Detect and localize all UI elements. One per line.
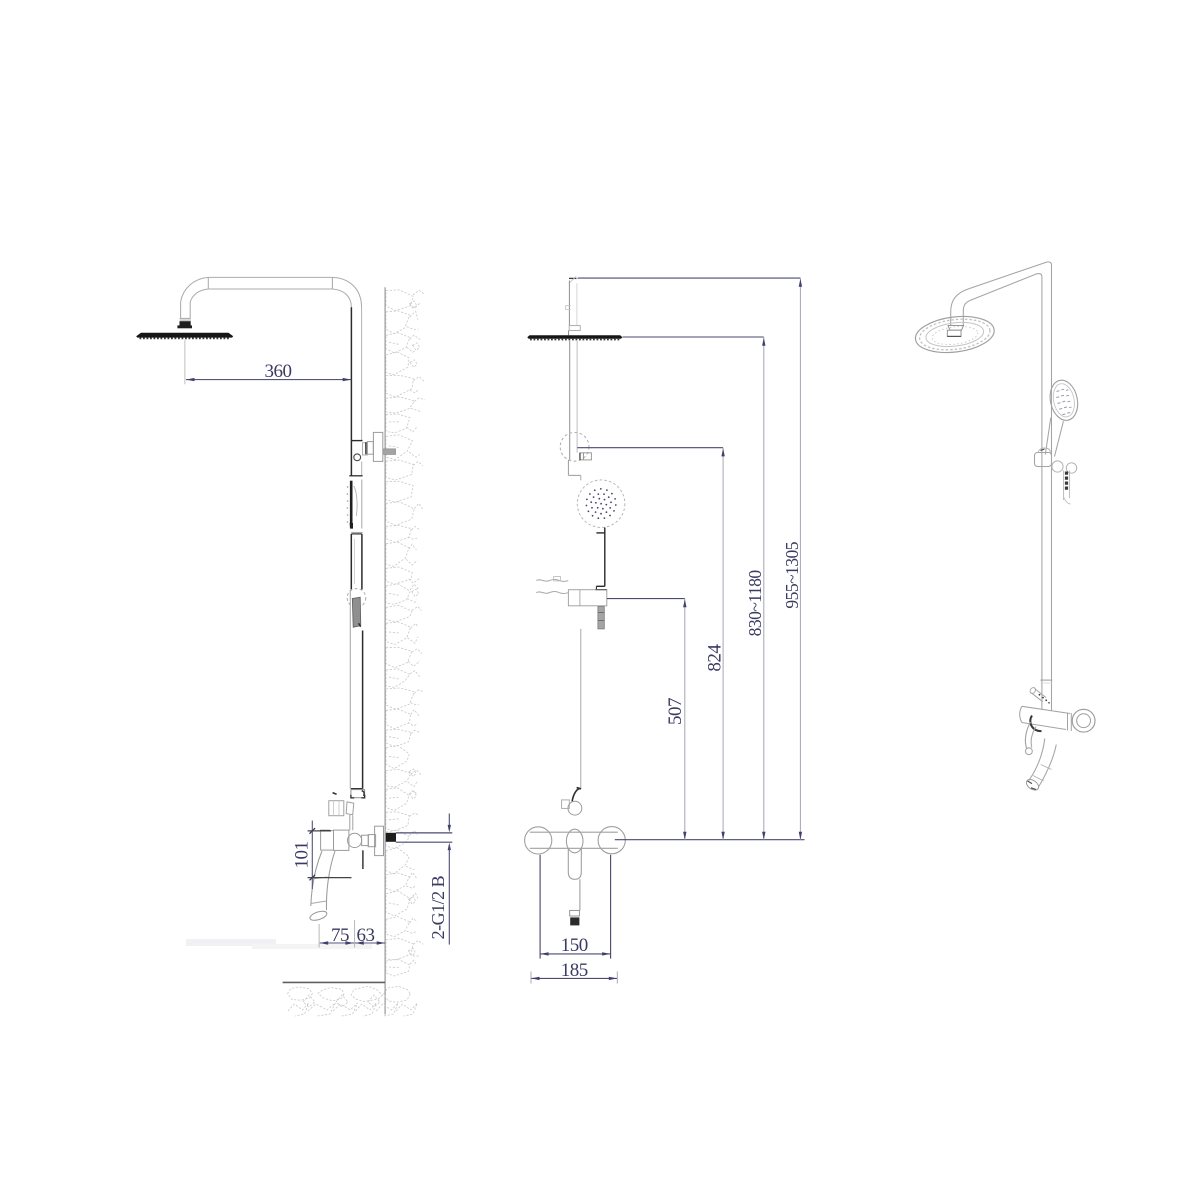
svg-text:150: 150	[561, 935, 588, 956]
svg-text:507: 507	[665, 698, 686, 725]
svg-text:360: 360	[265, 361, 292, 382]
svg-text:75: 75	[331, 925, 349, 946]
svg-text:824: 824	[705, 644, 726, 672]
svg-text:185: 185	[561, 960, 588, 981]
svg-text:101: 101	[292, 842, 313, 869]
svg-text:830~1180: 830~1180	[745, 570, 765, 637]
svg-text:2-G1/2 B: 2-G1/2 B	[428, 875, 448, 939]
svg-text:955~1305: 955~1305	[782, 541, 802, 608]
svg-text:63: 63	[357, 925, 375, 946]
